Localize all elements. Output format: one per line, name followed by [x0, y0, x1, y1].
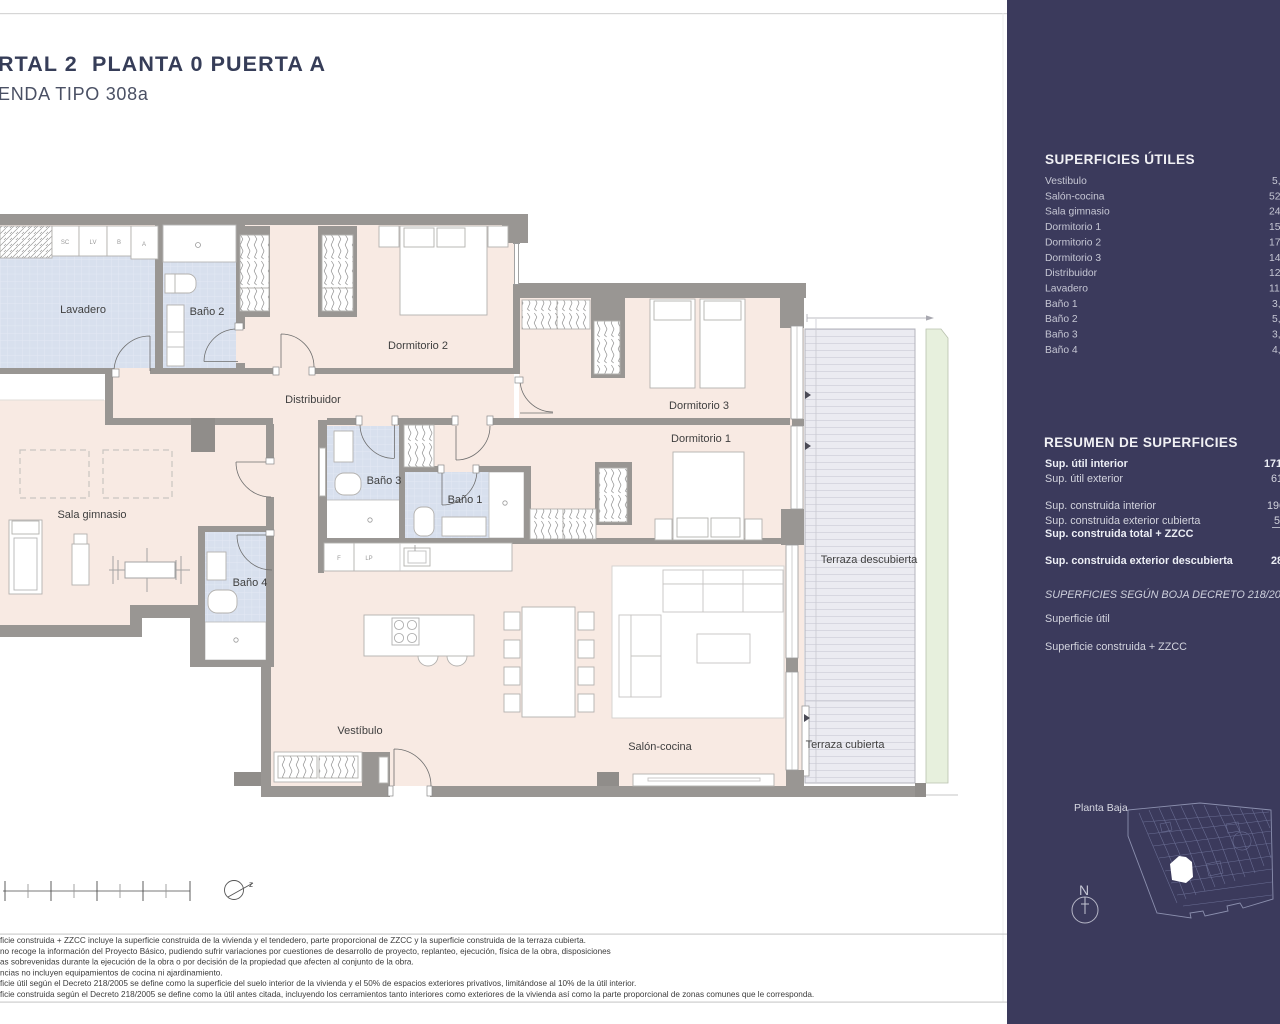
svg-text:Baño 1: Baño 1 [1045, 299, 1078, 310]
svg-text:Baño 2: Baño 2 [190, 306, 225, 318]
svg-text:SUPERFICIES ÚTILES: SUPERFICIES ÚTILES [1045, 152, 1195, 167]
svg-text:Salón-cocina: Salón-cocina [1045, 191, 1105, 202]
svg-text:17,35 m²: 17,35 m² [1269, 237, 1280, 248]
svg-text:RESUMEN DE SUPERFICIES: RESUMEN DE SUPERFICIES [1044, 435, 1238, 450]
svg-text:ficie útil según el Decreto 21: ficie útil según el Decreto 218/2005 se … [0, 979, 636, 988]
svg-text:ENDA TIPO 308a: ENDA TIPO 308a [0, 84, 149, 104]
svg-text:3,75 m²: 3,75 m² [1272, 330, 1280, 341]
svg-text:Sup. construida exterior cubie: Sup. construida exterior cubierta [1045, 515, 1200, 527]
svg-text:Dormitorio 2: Dormitorio 2 [1045, 237, 1101, 248]
svg-text:Sala gimnasio: Sala gimnasio [57, 509, 126, 521]
svg-text:Vestibulo: Vestibulo [1045, 176, 1087, 187]
svg-text:24,10 m²: 24,10 m² [1269, 207, 1280, 218]
svg-text:Baño 1: Baño 1 [448, 494, 483, 506]
svg-text:Sup. útil interior: Sup. útil interior [1045, 458, 1129, 470]
svg-text:171,95: 171,95 [1264, 458, 1280, 470]
svg-text:5,40 m²: 5,40 m² [1272, 176, 1280, 187]
svg-text:5,80: 5,80 [1274, 515, 1280, 527]
svg-text:A: A [142, 242, 146, 248]
svg-text:Lavadero: Lavadero [60, 304, 106, 316]
svg-text:Baño 3: Baño 3 [367, 475, 402, 487]
svg-text:Sup. construida interior: Sup. construida interior [1045, 500, 1156, 512]
svg-text:Baño 4: Baño 4 [233, 577, 268, 589]
svg-text:F: F [337, 556, 341, 562]
svg-text:28,60: 28,60 [1271, 555, 1280, 567]
svg-text:Sup. construida total + ZZCC: Sup. construida total + ZZCC [1045, 528, 1194, 540]
svg-text:Sup. útil exterior: Sup. útil exterior [1045, 473, 1123, 485]
svg-text:RTAL 2 PLANTA 0 PUERTA A: RTAL 2 PLANTA 0 PUERTA A [0, 52, 326, 76]
svg-text:no recoge la información del P: no recoge la información del Proyecto Bá… [0, 947, 611, 956]
svg-text:ncias no incluyen equipamiento: ncias no incluyen equipamientos de cocin… [0, 968, 223, 977]
svg-text:LP: LP [365, 556, 372, 562]
svg-text:Distribuidor: Distribuidor [285, 394, 341, 406]
svg-text:Dormitorio 1: Dormitorio 1 [671, 433, 731, 445]
svg-text:Superficie útil: Superficie útil [1045, 613, 1110, 625]
svg-text:52,75 m²: 52,75 m² [1269, 191, 1280, 202]
svg-text:14,80 m²: 14,80 m² [1269, 253, 1280, 264]
svg-text:Lavadero: Lavadero [1045, 284, 1088, 295]
svg-text:Salón-cocina: Salón-cocina [628, 741, 692, 753]
svg-text:Planta Baja: Planta Baja [1074, 802, 1128, 814]
svg-text:4,60 m²: 4,60 m² [1272, 345, 1280, 356]
svg-text:Dormitorio 2: Dormitorio 2 [388, 340, 448, 352]
svg-text:ficie construida + ZZCC incluy: ficie construida + ZZCC incluye la super… [0, 936, 586, 945]
svg-text:SUPERFICIES SEGÚN BOJA DECRETO: SUPERFICIES SEGÚN BOJA DECRETO 218/2005 … [1045, 588, 1280, 601]
svg-text:5,45 m²: 5,45 m² [1272, 314, 1280, 325]
svg-text:11,95 m²: 11,95 m² [1269, 284, 1280, 295]
svg-text:ficie construida según el Decr: ficie construida según el Decreto 218/20… [0, 990, 814, 999]
svg-text:61,60: 61,60 [1271, 473, 1280, 485]
svg-text:Baño 4: Baño 4 [1045, 345, 1078, 356]
svg-text:B: B [117, 240, 121, 246]
svg-text:Superficie construida + ZZCC: Superficie construida + ZZCC [1045, 641, 1187, 653]
svg-text:196,70: 196,70 [1267, 500, 1280, 512]
svg-text:Baño 2: Baño 2 [1045, 314, 1078, 325]
svg-text:z: z [249, 880, 253, 889]
svg-text:as sobrevenidas durante la eje: as sobrevenidas durante la ejecución de … [0, 958, 414, 967]
svg-text:Dormitorio 1: Dormitorio 1 [1045, 222, 1101, 233]
svg-text:Sup. construida exterior descu: Sup. construida exterior descubierta [1045, 555, 1234, 567]
svg-text:N: N [1079, 882, 1089, 898]
svg-text:Terraza descubierta: Terraza descubierta [821, 554, 918, 566]
svg-text:Baño 3: Baño 3 [1045, 330, 1078, 341]
svg-text:15,20 m²: 15,20 m² [1269, 222, 1280, 233]
svg-text:Dormitorio 3: Dormitorio 3 [669, 400, 729, 412]
svg-text:Dormitorio 3: Dormitorio 3 [1045, 253, 1101, 264]
svg-text:LV: LV [90, 240, 97, 246]
svg-text:Vestíbulo: Vestíbulo [337, 725, 382, 737]
svg-text:3,90 m²: 3,90 m² [1272, 299, 1280, 310]
svg-text:12,60 m²: 12,60 m² [1269, 268, 1280, 279]
svg-text:Sala gimnasio: Sala gimnasio [1045, 207, 1110, 218]
svg-text:Terraza cubierta: Terraza cubierta [806, 739, 886, 751]
svg-text:Distribuidor: Distribuidor [1045, 268, 1098, 279]
svg-text:SC: SC [61, 240, 70, 246]
